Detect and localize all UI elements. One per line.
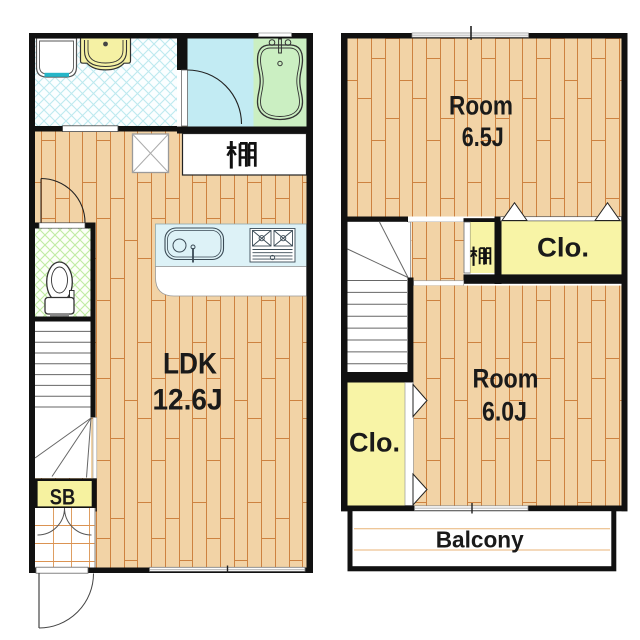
svg-text:Clo.: Clo. <box>349 428 400 458</box>
svg-text:6.5J: 6.5J <box>462 122 504 152</box>
svg-text:Room: Room <box>473 364 539 394</box>
svg-text:LDK: LDK <box>163 348 217 381</box>
svg-text:Balcony: Balcony <box>436 527 524 553</box>
svg-text:Room: Room <box>449 90 513 120</box>
svg-text:6.0J: 6.0J <box>482 397 527 427</box>
svg-text:Clo.: Clo. <box>537 233 589 263</box>
svg-text:12.6J: 12.6J <box>153 384 223 417</box>
svg-text:SB: SB <box>50 485 76 510</box>
